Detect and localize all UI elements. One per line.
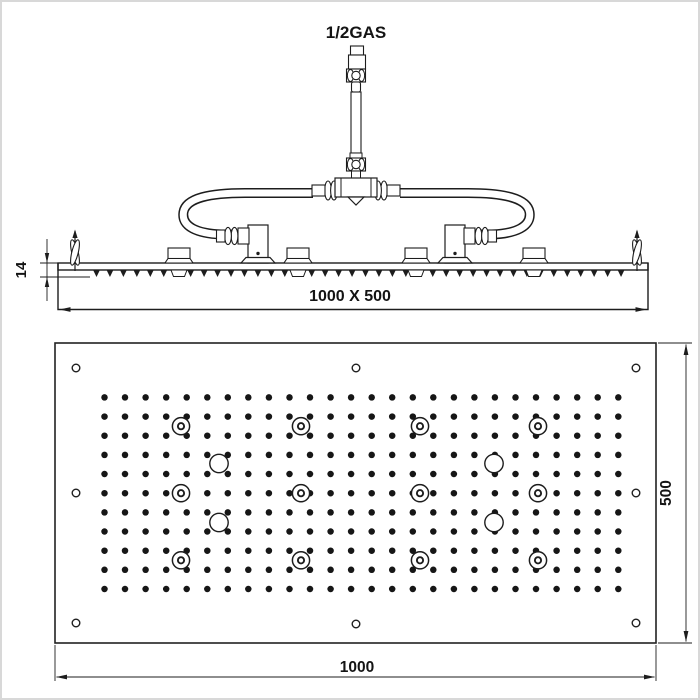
nozzle-dot bbox=[122, 432, 129, 439]
nozzle-tooth bbox=[456, 270, 463, 277]
nozzle-dot bbox=[204, 452, 211, 459]
nozzle-dot bbox=[492, 413, 499, 420]
nozzle-dot bbox=[307, 471, 314, 478]
nozzle-dot bbox=[142, 394, 149, 401]
nozzle-dot bbox=[594, 528, 601, 535]
mounting-hole bbox=[72, 489, 80, 497]
nozzle-tooth bbox=[241, 270, 248, 277]
nozzle-tooth bbox=[107, 270, 114, 277]
led-spot bbox=[529, 418, 546, 435]
nozzle-dot bbox=[410, 528, 417, 535]
nozzle-dot bbox=[225, 567, 232, 574]
nozzle-dot bbox=[368, 452, 375, 459]
nozzle-dot bbox=[533, 509, 540, 516]
nozzle-tooth bbox=[308, 270, 315, 277]
wide-nozzle bbox=[526, 270, 542, 277]
connector-nut-ring bbox=[231, 227, 238, 244]
nozzle-dot bbox=[389, 509, 396, 516]
width-arrow-left bbox=[56, 675, 67, 680]
nozzle-dot bbox=[266, 413, 273, 420]
nozzle-dot bbox=[101, 528, 108, 535]
nozzle-dot bbox=[327, 586, 334, 593]
tee-flange bbox=[350, 153, 362, 158]
nozzle-dot bbox=[266, 547, 273, 554]
nozzle-dot bbox=[142, 509, 149, 516]
width-dimension-label: 1000 bbox=[340, 659, 374, 676]
nozzle-dot bbox=[101, 471, 108, 478]
nozzle-dot bbox=[307, 528, 314, 535]
nozzle-tooth bbox=[133, 270, 140, 277]
nozzle-tooth bbox=[160, 270, 167, 277]
nozzle-dot bbox=[327, 452, 334, 459]
nozzle-dot bbox=[368, 567, 375, 574]
nozzle-dot bbox=[266, 394, 273, 401]
nozzle-dot bbox=[512, 413, 519, 420]
nozzle-dot bbox=[389, 432, 396, 439]
nozzle-dot bbox=[451, 528, 458, 535]
nozzle-dot bbox=[594, 452, 601, 459]
led-spot bbox=[411, 418, 428, 435]
nozzle-dot bbox=[204, 394, 211, 401]
nozzle-dot bbox=[122, 547, 129, 554]
nozzle-dot bbox=[163, 490, 170, 497]
nozzle-dot bbox=[471, 547, 478, 554]
nozzle-teeth-row bbox=[93, 270, 624, 277]
round-outlet bbox=[485, 454, 503, 472]
nozzle-dot bbox=[101, 586, 108, 593]
height-arrow-top bbox=[684, 344, 689, 355]
nozzle-dot bbox=[389, 567, 396, 574]
nozzle-dot bbox=[266, 490, 273, 497]
nozzle-tooth bbox=[591, 270, 598, 277]
nozzle-dot bbox=[101, 394, 108, 401]
nozzle-dot bbox=[286, 452, 293, 459]
nozzle-dot bbox=[492, 490, 499, 497]
nozzle-dot bbox=[142, 547, 149, 554]
nozzle-dot bbox=[512, 547, 519, 554]
nozzle-tooth bbox=[618, 270, 625, 277]
nozzle-dot bbox=[183, 586, 190, 593]
nozzle-dot bbox=[266, 586, 273, 593]
nozzle-dot bbox=[348, 432, 355, 439]
nozzle-dot bbox=[471, 490, 478, 497]
nozzle-dot bbox=[389, 413, 396, 420]
nozzle-dot bbox=[348, 509, 355, 516]
pipe-neck bbox=[352, 82, 361, 92]
technical-drawing-sheet: 1/2GAS 14 1000 X 500 1000 500 bbox=[0, 0, 700, 700]
nozzle-dot bbox=[142, 528, 149, 535]
block-body bbox=[405, 248, 427, 259]
nozzle-dot bbox=[204, 586, 211, 593]
nozzle-dot bbox=[389, 490, 396, 497]
nozzle-dot bbox=[368, 490, 375, 497]
nozzle-dot bbox=[553, 547, 560, 554]
nozzle-dot bbox=[368, 413, 375, 420]
panel-size-dimension-label: 1000 X 500 bbox=[309, 288, 391, 305]
nozzle-tooth bbox=[349, 270, 356, 277]
nozzle-dot bbox=[204, 509, 211, 516]
nozzle-dot bbox=[389, 547, 396, 554]
side-view bbox=[40, 46, 648, 312]
nozzle-dot bbox=[471, 567, 478, 574]
nozzle-dot bbox=[245, 528, 252, 535]
nozzle-dot bbox=[101, 452, 108, 459]
block-body bbox=[287, 248, 309, 259]
nozzle-dot bbox=[163, 452, 170, 459]
nozzle-dot bbox=[615, 509, 622, 516]
nozzle-dot bbox=[348, 586, 355, 593]
mounting-hole bbox=[72, 364, 80, 372]
bracket-base bbox=[438, 258, 472, 264]
nozzle-dot bbox=[225, 547, 232, 554]
nozzle-dot bbox=[204, 413, 211, 420]
nozzle-dot bbox=[286, 528, 293, 535]
nozzle-dot bbox=[451, 394, 458, 401]
nozzle-tooth bbox=[228, 270, 235, 277]
nozzle-dot bbox=[163, 567, 170, 574]
round-outlet bbox=[210, 454, 228, 472]
nozzle-tooth bbox=[281, 270, 288, 277]
nozzle-tooth bbox=[550, 270, 557, 277]
nozzle-dot bbox=[204, 547, 211, 554]
mounting-brackets bbox=[241, 225, 472, 263]
nozzle-dot bbox=[492, 432, 499, 439]
nozzle-dot bbox=[163, 432, 170, 439]
nozzle-dot bbox=[574, 413, 581, 420]
nozzle-dot bbox=[594, 413, 601, 420]
bracket-screw bbox=[256, 252, 259, 255]
height-dimension-label: 500 bbox=[658, 480, 675, 506]
nozzle-dot bbox=[574, 586, 581, 593]
nozzle-dot bbox=[225, 509, 232, 516]
bracket-screw bbox=[453, 252, 456, 255]
mounting-hole bbox=[632, 489, 640, 497]
nozzle-dot bbox=[492, 586, 499, 593]
nozzle-dot bbox=[430, 528, 437, 535]
led-inner-ring bbox=[178, 423, 184, 429]
hose-connector-right bbox=[464, 227, 497, 244]
nozzle-dot bbox=[225, 586, 232, 593]
clip-tip bbox=[72, 230, 77, 239]
nozzle-dot bbox=[204, 490, 211, 497]
nozzle-dot bbox=[327, 567, 334, 574]
panel-dim-arrow-right bbox=[636, 307, 647, 312]
connector-stub bbox=[217, 230, 226, 242]
nozzle-dot bbox=[451, 567, 458, 574]
thickness-arrow-bottom bbox=[45, 277, 49, 287]
nozzle-dot bbox=[183, 471, 190, 478]
nozzle-dot bbox=[410, 586, 417, 593]
nozzle-dot bbox=[122, 586, 129, 593]
nozzle-dot bbox=[553, 394, 560, 401]
nozzle-tooth bbox=[201, 270, 208, 277]
nozzle-dot bbox=[122, 490, 129, 497]
nozzle-dot bbox=[553, 452, 560, 459]
nozzle-dot bbox=[348, 490, 355, 497]
nozzle-dot bbox=[183, 452, 190, 459]
nozzle-dot bbox=[368, 432, 375, 439]
nozzle-dot bbox=[245, 432, 252, 439]
nozzle-dot bbox=[471, 413, 478, 420]
nozzle-dot bbox=[225, 413, 232, 420]
round-outlet bbox=[485, 513, 503, 531]
spring-clip bbox=[69, 230, 81, 272]
nozzle-dot bbox=[183, 394, 190, 401]
nozzle-dot bbox=[615, 490, 622, 497]
nozzle-dot bbox=[533, 394, 540, 401]
nozzle-dot bbox=[245, 471, 252, 478]
mounting-hole bbox=[72, 619, 80, 627]
nozzle-dot bbox=[410, 452, 417, 459]
nozzle-dot bbox=[615, 528, 622, 535]
nozzle-dot bbox=[163, 509, 170, 516]
nozzle-dot bbox=[225, 394, 232, 401]
nozzle-dot bbox=[225, 432, 232, 439]
nozzle-dot bbox=[389, 471, 396, 478]
thickness-dimension-label: 14 bbox=[13, 261, 30, 278]
nozzle-tooth bbox=[510, 270, 517, 277]
led-inner-ring bbox=[535, 490, 541, 496]
nozzle-dot bbox=[574, 432, 581, 439]
nozzle-dot bbox=[327, 490, 334, 497]
connector-nut-ring bbox=[475, 227, 482, 244]
led-inner-ring bbox=[178, 557, 184, 563]
nozzle-tooth bbox=[187, 270, 194, 277]
nozzle-dot bbox=[594, 586, 601, 593]
nozzle-dot bbox=[594, 490, 601, 497]
hose-connector-left bbox=[217, 227, 250, 244]
nozzle-dot bbox=[574, 471, 581, 478]
nozzle-dot bbox=[512, 586, 519, 593]
nozzle-dot bbox=[266, 509, 273, 516]
nozzle-dot bbox=[307, 586, 314, 593]
nozzle-dot bbox=[553, 528, 560, 535]
nozzle-tooth bbox=[389, 270, 396, 277]
connector-stub bbox=[488, 230, 497, 242]
nozzle-dot bbox=[615, 432, 622, 439]
led-inner-ring bbox=[298, 490, 304, 496]
block-body bbox=[523, 248, 545, 259]
nozzle-dot bbox=[142, 490, 149, 497]
tee-neck bbox=[352, 171, 361, 178]
nozzle-dot bbox=[266, 528, 273, 535]
nozzle-dot bbox=[594, 394, 601, 401]
nozzle-dot bbox=[225, 490, 232, 497]
pipe-collar bbox=[349, 55, 366, 69]
nozzle-dot bbox=[574, 452, 581, 459]
nozzle-dot bbox=[430, 547, 437, 554]
led-spot bbox=[292, 485, 309, 502]
tee-connector bbox=[312, 178, 400, 205]
led-spot bbox=[292, 418, 309, 435]
block-base bbox=[402, 259, 430, 264]
nozzle-dot bbox=[142, 452, 149, 459]
nozzle-dot bbox=[430, 509, 437, 516]
led-spot bbox=[172, 552, 189, 569]
nozzle-dot bbox=[430, 586, 437, 593]
nozzle-dot bbox=[471, 509, 478, 516]
connector-body bbox=[464, 228, 475, 244]
led-spot bbox=[292, 552, 309, 569]
nozzle-dot bbox=[389, 394, 396, 401]
nozzle-dot bbox=[451, 471, 458, 478]
nozzle-dot bbox=[307, 432, 314, 439]
nozzle-tooth bbox=[214, 270, 221, 277]
nut-center bbox=[352, 71, 360, 79]
nozzle-dot bbox=[183, 528, 190, 535]
nozzle-dot bbox=[430, 394, 437, 401]
nozzle-dot bbox=[368, 586, 375, 593]
nozzle-dot bbox=[122, 509, 129, 516]
nozzle-dot bbox=[512, 471, 519, 478]
nozzle-dot bbox=[327, 547, 334, 554]
nozzle-dot bbox=[512, 528, 519, 535]
nozzle-dot bbox=[163, 394, 170, 401]
nozzle-dot bbox=[451, 452, 458, 459]
wide-nozzle bbox=[408, 270, 424, 277]
support-block bbox=[520, 248, 548, 263]
riser-pipe bbox=[351, 92, 361, 153]
nozzle-dot bbox=[204, 528, 211, 535]
pipe-thread-end bbox=[351, 46, 364, 55]
nozzle-dot bbox=[615, 567, 622, 574]
nozzle-dot bbox=[471, 452, 478, 459]
nozzle-dot bbox=[348, 413, 355, 420]
nozzle-dot bbox=[512, 567, 519, 574]
nozzle-dot bbox=[327, 528, 334, 535]
nozzle-dot bbox=[368, 394, 375, 401]
nozzle-dot bbox=[204, 567, 211, 574]
plan-view bbox=[55, 343, 692, 681]
nozzle-tooth bbox=[443, 270, 450, 277]
nozzle-dot bbox=[451, 509, 458, 516]
nozzle-dot bbox=[574, 490, 581, 497]
led-inner-ring bbox=[417, 490, 423, 496]
nozzle-dot bbox=[163, 586, 170, 593]
gas-connection-label: 1/2GAS bbox=[326, 23, 386, 42]
nozzle-dot bbox=[286, 471, 293, 478]
height-arrow-bottom bbox=[684, 631, 689, 642]
nozzle-dot bbox=[368, 528, 375, 535]
nozzle-dot bbox=[574, 509, 581, 516]
nozzle-dot bbox=[615, 586, 622, 593]
nozzle-dot bbox=[286, 567, 293, 574]
nozzle-dot bbox=[286, 432, 293, 439]
connector-body bbox=[238, 228, 249, 244]
connector-nut-ring bbox=[225, 227, 232, 244]
nozzle-dot bbox=[183, 509, 190, 516]
led-spot bbox=[172, 418, 189, 435]
support-block bbox=[284, 248, 312, 263]
led-spot bbox=[529, 552, 546, 569]
nozzle-tooth bbox=[483, 270, 490, 277]
block-base bbox=[284, 259, 312, 264]
clip-tip bbox=[634, 230, 639, 239]
round-outlet bbox=[210, 513, 228, 531]
mounting-hole bbox=[352, 364, 360, 372]
nozzle-dot bbox=[163, 471, 170, 478]
nozzle-dot bbox=[451, 413, 458, 420]
spring-clip bbox=[631, 230, 643, 272]
nozzle-dot bbox=[327, 509, 334, 516]
nozzle-dot bbox=[348, 528, 355, 535]
nozzle-tooth bbox=[255, 270, 262, 277]
nozzle-dot bbox=[368, 547, 375, 554]
nozzle-dot bbox=[368, 471, 375, 478]
nozzle-dot bbox=[430, 452, 437, 459]
mounting-hole bbox=[352, 620, 360, 628]
nozzle-dot bbox=[533, 586, 540, 593]
nozzle-dot bbox=[348, 547, 355, 554]
support-block bbox=[165, 248, 193, 263]
nozzle-dot bbox=[163, 547, 170, 554]
nozzle-dot bbox=[471, 432, 478, 439]
nozzle-dot bbox=[512, 490, 519, 497]
water-inlet-assembly bbox=[347, 46, 366, 178]
nozzle-tooth bbox=[429, 270, 436, 277]
nozzle-dot bbox=[122, 413, 129, 420]
nozzle-dot bbox=[594, 567, 601, 574]
tee-outlet-chevron bbox=[348, 197, 364, 205]
nozzle-dot bbox=[553, 586, 560, 593]
nozzle-dot bbox=[307, 394, 314, 401]
nozzle-dot bbox=[574, 528, 581, 535]
nozzle-dot bbox=[327, 432, 334, 439]
nozzle-dot bbox=[142, 586, 149, 593]
nozzle-tooth bbox=[322, 270, 329, 277]
nozzle-dot bbox=[594, 547, 601, 554]
nozzle-dot bbox=[512, 509, 519, 516]
nozzle-dot bbox=[307, 547, 314, 554]
led-inner-ring bbox=[178, 490, 184, 496]
nozzle-dot bbox=[574, 567, 581, 574]
nozzle-dot bbox=[574, 394, 581, 401]
nozzle-dot bbox=[101, 567, 108, 574]
nozzle-dot bbox=[286, 413, 293, 420]
nozzle-dot bbox=[553, 509, 560, 516]
block-base bbox=[520, 259, 548, 264]
width-arrow-right bbox=[644, 675, 655, 680]
nozzle-dot bbox=[286, 586, 293, 593]
wide-nozzle bbox=[171, 270, 187, 277]
nozzle-dot bbox=[348, 394, 355, 401]
nozzle-dot bbox=[101, 490, 108, 497]
led-inner-ring bbox=[298, 423, 304, 429]
nozzle-dot bbox=[142, 413, 149, 420]
nozzle-dot bbox=[245, 452, 252, 459]
nozzle-dot bbox=[348, 471, 355, 478]
nozzle-dot bbox=[307, 567, 314, 574]
nozzle-tooth bbox=[268, 270, 275, 277]
nozzle-dot bbox=[533, 528, 540, 535]
nozzle-dot bbox=[471, 394, 478, 401]
block-base bbox=[165, 259, 193, 264]
nozzle-dot bbox=[451, 547, 458, 554]
nozzle-dot bbox=[553, 567, 560, 574]
nozzle-tooth bbox=[376, 270, 383, 277]
nozzle-dot bbox=[410, 471, 417, 478]
support-blocks bbox=[165, 248, 548, 263]
nozzle-dot bbox=[574, 547, 581, 554]
nozzle-dot bbox=[327, 471, 334, 478]
nozzle-dot bbox=[307, 413, 314, 420]
bracket-base bbox=[241, 258, 275, 264]
led-inner-ring bbox=[535, 423, 541, 429]
nozzle-tooth bbox=[577, 270, 584, 277]
thickness-arrow-top bbox=[45, 253, 49, 263]
nozzle-dot bbox=[430, 471, 437, 478]
nozzle-dot bbox=[142, 567, 149, 574]
